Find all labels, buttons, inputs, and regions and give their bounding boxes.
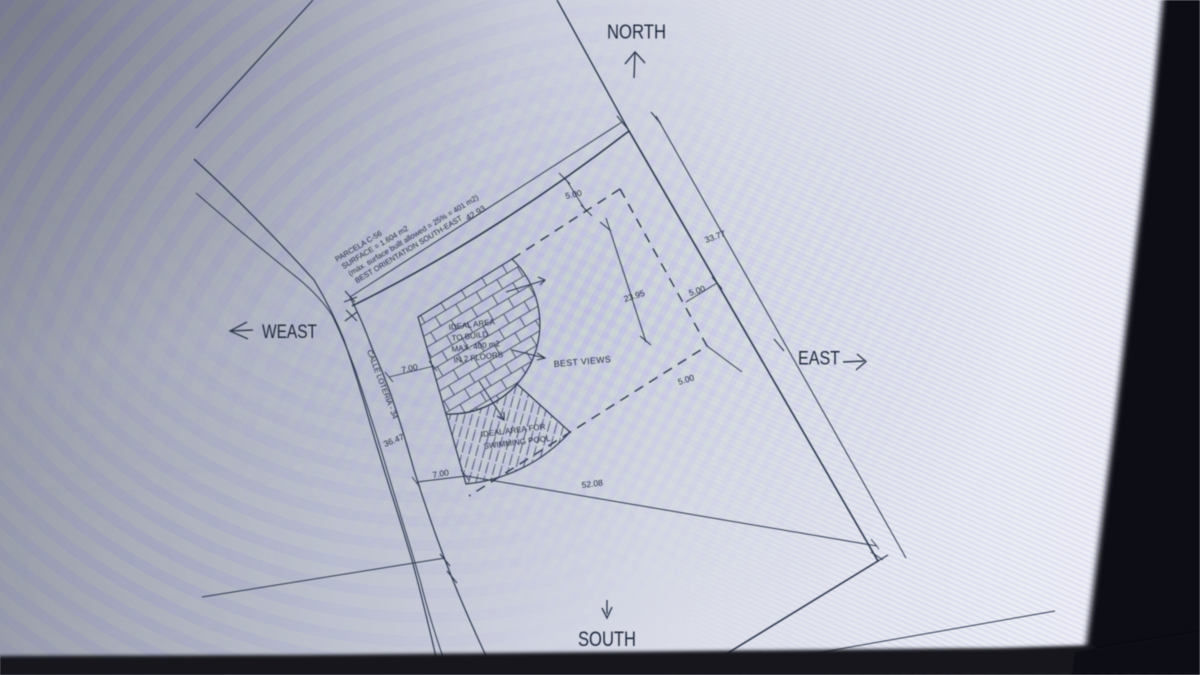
svg-text:EAST: EAST <box>798 349 840 370</box>
svg-text:WEAST: WEAST <box>262 322 317 343</box>
svg-text:52.08: 52.08 <box>581 477 604 490</box>
svg-text:BEST VIEWS: BEST VIEWS <box>553 354 611 369</box>
svg-text:7.00: 7.00 <box>400 362 419 375</box>
svg-text:5.00: 5.00 <box>688 283 707 298</box>
svg-text:5.00: 5.00 <box>564 188 583 201</box>
svg-text:NORTH: NORTH <box>607 21 666 44</box>
svg-text:33.77: 33.77 <box>703 228 727 245</box>
svg-text:23.95: 23.95 <box>623 288 647 304</box>
svg-text:5.00: 5.00 <box>677 372 696 387</box>
svg-text:CALLE LOTERIA - 34: CALLE LOTERIA - 34 <box>365 348 400 420</box>
svg-text:SOUTH: SOUTH <box>578 627 636 651</box>
svg-text:36.47: 36.47 <box>382 432 406 449</box>
